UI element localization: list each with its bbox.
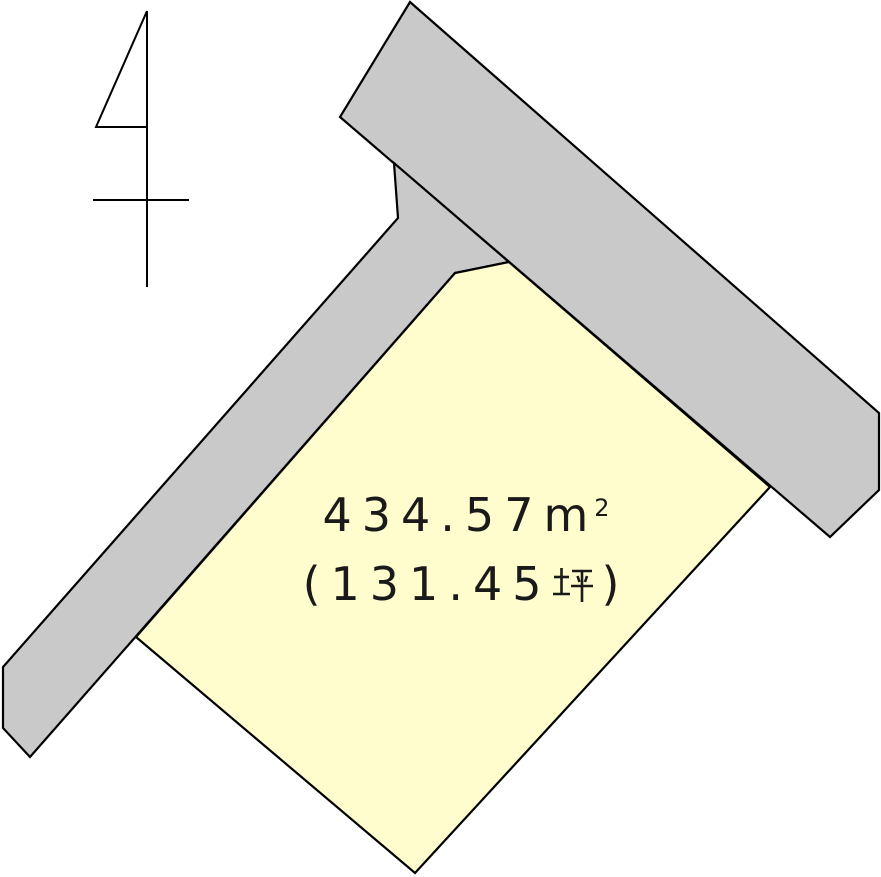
area-sqm-unit: m xyxy=(543,488,598,542)
north-arrow-icon xyxy=(93,11,189,287)
parcel-area-tsubo-label: (131.45 ) xyxy=(166,556,766,612)
tsubo-unit-glyph xyxy=(551,562,593,604)
plot-map-canvas xyxy=(0,0,881,877)
parcel-area-sqm-label: 434.57m2 xyxy=(166,480,766,536)
area-sqm-value: 434.57 xyxy=(323,488,544,542)
land-plot-diagram: 434.57m2 (131.45 ) xyxy=(0,0,881,877)
north-arrow-flag xyxy=(96,11,147,127)
area-tsubo-value: 131.45 xyxy=(331,557,552,611)
tsubo-close-paren: ) xyxy=(601,557,629,611)
area-sqm-unit-exponent: 2 xyxy=(594,494,609,522)
tsubo-open-paren: ( xyxy=(303,557,331,611)
